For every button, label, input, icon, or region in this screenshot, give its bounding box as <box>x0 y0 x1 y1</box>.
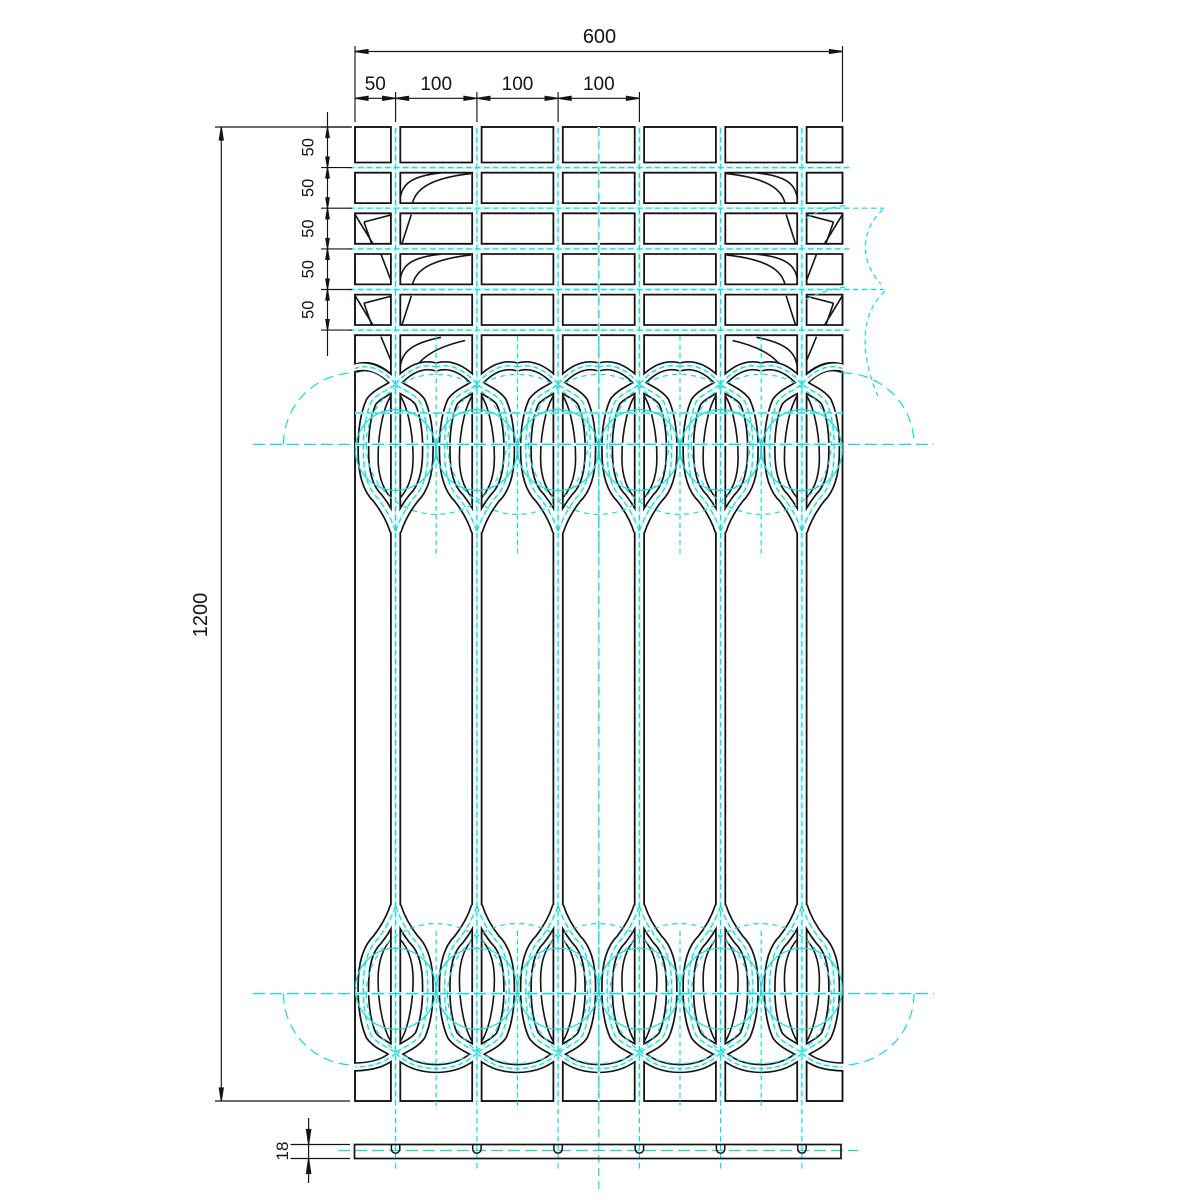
svg-text:100: 100 <box>420 74 452 95</box>
svg-text:50: 50 <box>365 74 386 95</box>
svg-text:50: 50 <box>300 219 318 237</box>
svg-text:1200: 1200 <box>190 593 212 638</box>
svg-text:50: 50 <box>300 301 318 319</box>
svg-text:600: 600 <box>583 26 616 48</box>
svg-text:50: 50 <box>300 179 318 197</box>
svg-text:100: 100 <box>583 74 615 95</box>
svg-text:50: 50 <box>300 260 318 278</box>
svg-text:100: 100 <box>502 74 534 95</box>
svg-text:50: 50 <box>300 138 318 156</box>
svg-text:18: 18 <box>273 1142 292 1161</box>
